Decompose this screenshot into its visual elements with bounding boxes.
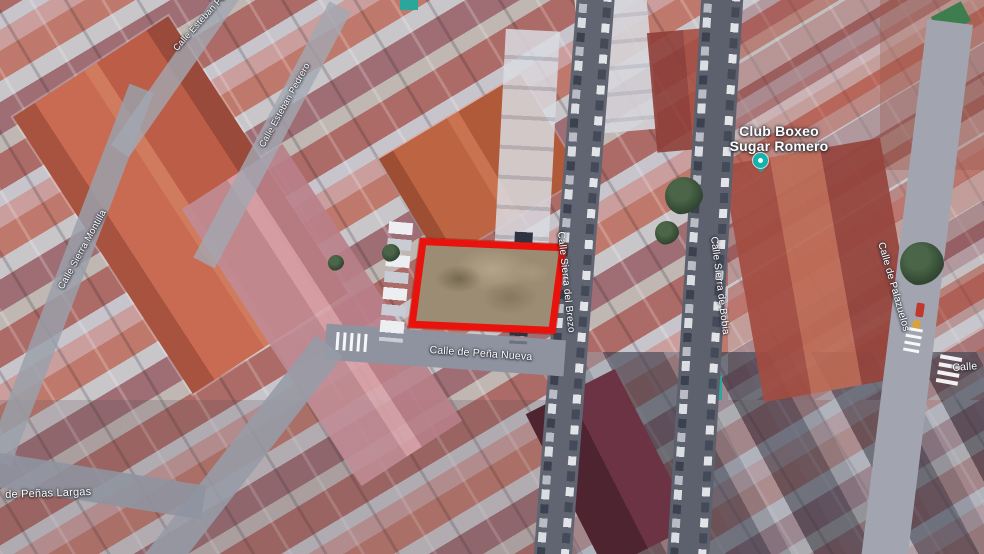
map-canvas[interactable]: Calle Sierra del Brezo Calle Sierra de B…	[0, 0, 984, 554]
poi-pin-icon[interactable]	[753, 153, 768, 168]
street-label-calle-partial: Calle	[952, 360, 978, 374]
pin-head	[753, 153, 768, 168]
highlighted-lot-outline	[408, 238, 567, 334]
tree	[665, 177, 703, 215]
tree	[900, 242, 944, 286]
tree	[382, 244, 400, 262]
poi-name-line2: Sugar Romero	[714, 139, 844, 154]
poi-label-club-boxeo-sugar-romero[interactable]: Club Boxeo Sugar Romero	[714, 124, 844, 154]
rooftop-pool	[400, 0, 418, 10]
crosswalk	[335, 332, 367, 352]
poi-name-line1: Club Boxeo	[714, 124, 844, 139]
tree	[655, 221, 679, 245]
tree	[328, 255, 344, 271]
